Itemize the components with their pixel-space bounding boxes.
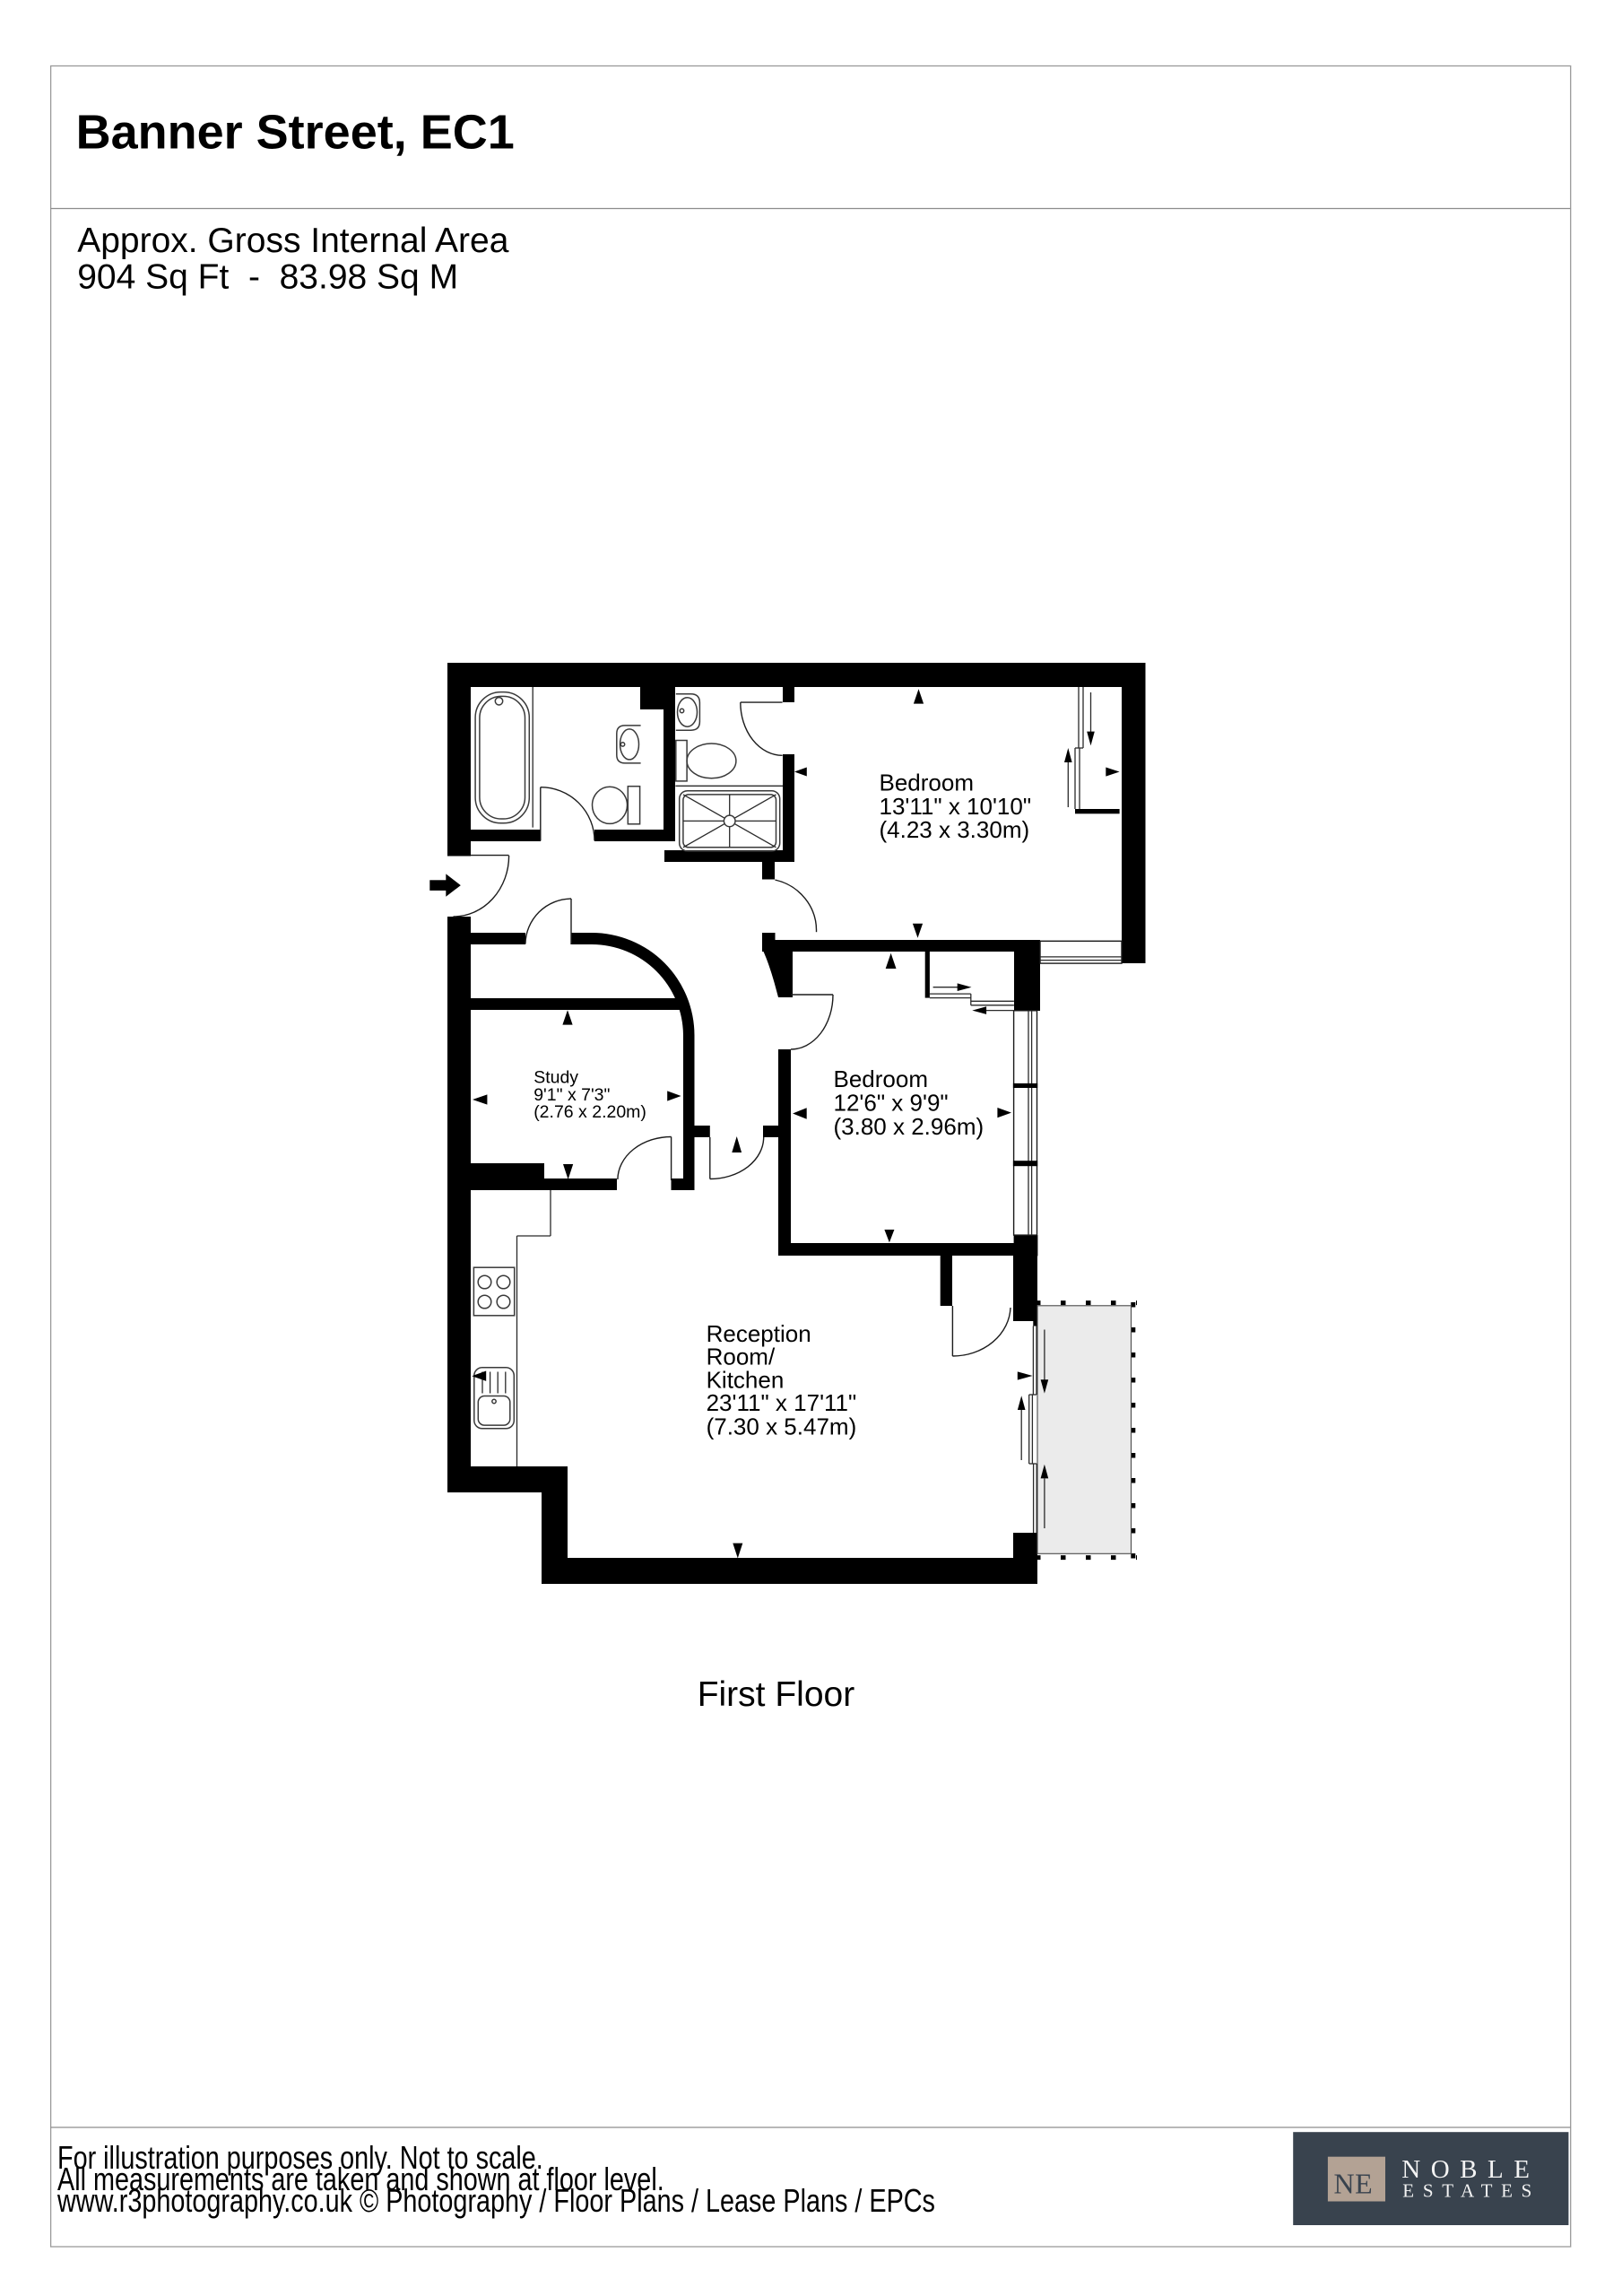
svg-text:23'11" x 17'11": 23'11" x 17'11" bbox=[707, 1389, 857, 1416]
svg-text:ESTATES: ESTATES bbox=[1402, 2179, 1540, 2201]
svg-text:(2.76 x 2.20m): (2.76 x 2.20m) bbox=[533, 1102, 646, 1122]
svg-text:904 Sq Ft - 83.98 Sq M: 904 Sq Ft - 83.98 Sq M bbox=[77, 258, 458, 297]
svg-text:(4.23 x 3.30m): (4.23 x 3.30m) bbox=[880, 816, 1030, 843]
svg-text:Banner Street, EC1: Banner Street, EC1 bbox=[76, 106, 515, 160]
svg-text:Approx. Gross Internal Area: Approx. Gross Internal Area bbox=[77, 222, 509, 260]
svg-text:www.r3photography.co.uk © Phot: www.r3photography.co.uk © Photography / … bbox=[56, 2182, 935, 2219]
svg-text:(3.80 x 2.96m): (3.80 x 2.96m) bbox=[834, 1113, 984, 1140]
svg-text:NE: NE bbox=[1334, 2168, 1374, 2200]
svg-text:12'6" x 9'9": 12'6" x 9'9" bbox=[834, 1089, 949, 1116]
svg-text:First Floor: First Floor bbox=[698, 1675, 855, 1714]
svg-text:(7.30 x 5.47m): (7.30 x 5.47m) bbox=[707, 1413, 857, 1440]
